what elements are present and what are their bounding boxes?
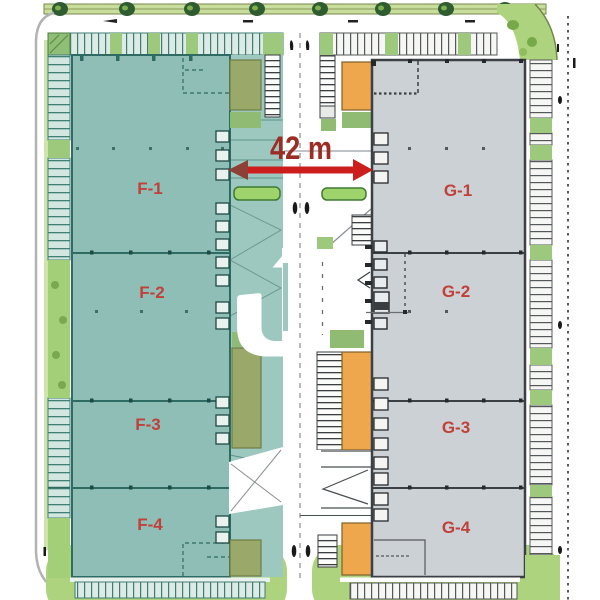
svg-text:42 m: 42 m <box>270 130 332 166</box>
svg-text:G-1: G-1 <box>444 181 472 200</box>
svg-text:F-4: F-4 <box>137 515 163 534</box>
svg-text:G-4: G-4 <box>442 518 471 537</box>
svg-text:F-3: F-3 <box>135 415 161 434</box>
svg-text:G-2: G-2 <box>442 282 470 301</box>
svg-text:F-1: F-1 <box>137 179 163 198</box>
svg-text:G-3: G-3 <box>442 418 470 437</box>
svg-text:F-2: F-2 <box>139 283 165 302</box>
